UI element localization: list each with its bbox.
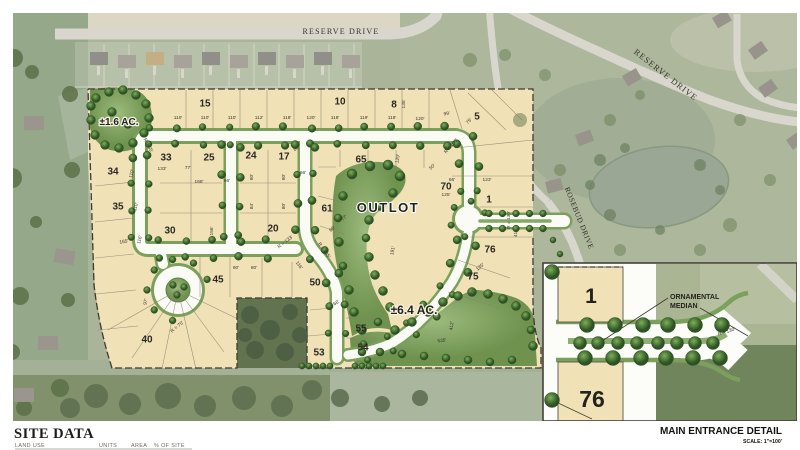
tree-cluster	[155, 383, 181, 409]
lot-number: 61	[321, 204, 333, 215]
tree-icon	[486, 225, 493, 232]
tree-icon	[199, 124, 206, 131]
tree-icon	[441, 122, 449, 130]
tree-cluster	[554, 164, 566, 176]
tree-icon	[87, 116, 96, 125]
tree-icon	[119, 86, 128, 95]
tree-icon	[384, 333, 390, 339]
tree-icon	[170, 282, 177, 289]
tree-cluster	[513, 113, 527, 127]
tree-icon	[320, 363, 326, 369]
tree-cluster	[463, 53, 477, 67]
tree-icon	[235, 252, 243, 260]
tree-icon	[484, 290, 493, 299]
tree-icon	[352, 363, 358, 369]
tree-icon	[306, 256, 313, 263]
tree-icon	[508, 356, 516, 364]
tree-icon	[308, 125, 316, 133]
tree-icon	[652, 337, 665, 350]
tree-icon	[291, 226, 299, 234]
street-name-reserve-top: RESERVE DRIVE	[303, 27, 380, 36]
detail-title: MAIN ENTRANCE DETAIL	[660, 426, 782, 437]
tree-cluster	[374, 396, 390, 412]
tree-cluster	[723, 218, 737, 232]
tree-icon	[345, 286, 354, 295]
tree-icon	[365, 253, 374, 262]
tree-icon	[362, 142, 369, 149]
tree-icon	[512, 302, 521, 311]
tree-cluster	[302, 380, 322, 400]
dimension-label: 123'	[483, 177, 492, 183]
driveway	[265, 66, 268, 75]
tree-icon	[219, 202, 226, 209]
tree-icon	[468, 198, 474, 204]
tree-icon	[540, 210, 547, 217]
tree-icon	[92, 94, 101, 103]
tree-cluster	[51, 379, 69, 397]
tree-icon	[341, 301, 348, 308]
inset-lot-76-number: 76	[579, 386, 605, 412]
lot-number: 53	[313, 348, 325, 359]
dimension-label: 133'	[158, 166, 167, 172]
tree-icon	[334, 140, 341, 147]
lot-number: 34	[107, 167, 119, 178]
tree-icon	[499, 225, 506, 232]
tree-cluster	[594, 154, 606, 166]
tree-icon	[200, 142, 207, 149]
tree-icon	[455, 160, 463, 168]
tree-icon	[281, 142, 289, 150]
tree-icon	[437, 283, 444, 290]
tree-icon	[390, 348, 396, 354]
tree-icon	[326, 303, 333, 310]
tree-icon	[612, 337, 625, 350]
lot-number: 24	[245, 151, 257, 162]
tree-icon	[442, 354, 450, 362]
tree-icon	[365, 216, 374, 225]
tree-cluster	[604, 114, 616, 126]
tree-icon	[454, 292, 463, 301]
lot-number: 17	[278, 152, 290, 163]
tree-cluster	[331, 389, 349, 407]
tree-icon	[252, 123, 260, 131]
tree-icon	[486, 358, 494, 366]
tree-icon	[335, 238, 344, 247]
tree-cluster	[585, 180, 595, 190]
tree-icon	[713, 351, 728, 366]
tree-icon	[254, 142, 262, 150]
tree-icon	[220, 233, 227, 240]
tree-icon	[383, 160, 393, 170]
tree-icon	[173, 125, 180, 132]
tree-icon	[313, 363, 319, 369]
tree-icon	[146, 181, 153, 188]
tree-icon	[169, 256, 176, 263]
tree-icon	[145, 207, 152, 214]
dimension-label: 135'	[401, 99, 407, 108]
tree-cluster	[60, 398, 80, 418]
lot-number: 33	[160, 153, 172, 164]
tree-icon	[339, 192, 348, 201]
lot-number: 54	[357, 343, 369, 354]
dimension-label: 118'	[331, 115, 340, 121]
tree-icon	[513, 210, 520, 217]
tree-icon	[389, 189, 398, 198]
dimension-label: 165'	[119, 238, 129, 245]
tree-icon	[204, 276, 211, 283]
tree-icon	[145, 114, 154, 123]
tree-cluster	[715, 185, 725, 195]
tree-icon	[350, 308, 359, 317]
tree-cluster	[614, 244, 626, 256]
dimension-label: 118'	[388, 115, 397, 121]
driveway	[321, 66, 324, 75]
tree-icon	[398, 350, 406, 358]
tree-cluster	[292, 327, 308, 343]
tree-icon	[306, 363, 312, 369]
lot-number: 15	[199, 99, 211, 110]
tree-cluster	[84, 384, 108, 408]
tree-icon	[128, 234, 135, 241]
dimension-label: 77'	[185, 165, 191, 171]
driveway	[97, 66, 100, 75]
lot-number: 20	[267, 224, 279, 235]
tree-icon	[408, 318, 417, 327]
house-roof	[342, 55, 360, 68]
tree-icon	[115, 144, 124, 153]
dimension-label: R = 130'	[506, 211, 512, 229]
tree-icon	[347, 169, 357, 179]
tree-icon	[420, 352, 428, 360]
tree-cluster	[64, 162, 80, 178]
tree-icon	[526, 210, 533, 217]
tree-icon	[499, 210, 506, 217]
dimension-label: 168'	[195, 179, 204, 185]
tree-icon	[389, 142, 396, 149]
ornamental-median-label-line2: MEDIAN	[670, 303, 698, 310]
tree-icon	[294, 199, 302, 207]
site-plan-map: RESERVE DRIVE RESERVE DRIVE ROSEBUD DRIV…	[0, 0, 800, 450]
house-roof	[230, 55, 248, 68]
tree-icon	[522, 312, 531, 321]
tree-icon	[169, 317, 176, 324]
tree-icon	[395, 171, 405, 181]
tree-icon	[380, 363, 386, 369]
tree-cluster	[119, 393, 141, 415]
lot-number: 76	[484, 245, 496, 256]
tree-icon	[448, 222, 454, 228]
dimension-label: 66'	[224, 178, 230, 184]
tree-icon	[364, 357, 371, 364]
tree-icon	[156, 255, 163, 262]
main-entrance-detail-inset: 1 76 ORNAMENTAL MEDIAN R = 130'	[543, 263, 797, 421]
dimension-label: 80'	[251, 265, 257, 271]
tree-icon	[218, 141, 226, 149]
tree-icon	[474, 188, 481, 195]
lot-number: 25	[203, 153, 215, 164]
tree-icon	[236, 173, 244, 181]
lot-number: 50	[309, 278, 321, 289]
house-roof	[286, 55, 304, 68]
lot-number: 65	[355, 155, 367, 166]
lot-number: 35	[112, 202, 124, 213]
tree-icon	[359, 363, 365, 369]
dimension-label: 156'	[209, 226, 215, 235]
driveway	[349, 69, 352, 78]
tree-cluster	[655, 225, 665, 235]
tree-icon	[631, 337, 644, 350]
tree-icon	[182, 253, 189, 260]
tree-icon	[155, 236, 162, 243]
tree-icon	[671, 337, 684, 350]
house-roof	[14, 388, 34, 402]
dimension-label: 66'	[300, 170, 306, 176]
tree-icon	[557, 251, 563, 257]
tree-icon	[91, 131, 100, 140]
tree-icon	[529, 342, 538, 351]
acreage-large-label: ±6.4 AC.	[391, 303, 438, 317]
tree-icon	[264, 255, 272, 263]
tree-icon	[208, 236, 215, 243]
tree-cluster	[694, 244, 706, 256]
tree-icon	[526, 225, 533, 232]
tree-icon	[446, 259, 454, 267]
site-data-col-area: AREA	[131, 443, 147, 449]
tree-icon	[129, 139, 138, 148]
house-roof	[174, 55, 192, 68]
tree-icon	[462, 234, 468, 240]
tree-icon	[142, 100, 151, 109]
lot-number: 40	[141, 335, 153, 346]
tree-icon	[327, 363, 333, 369]
tree-icon	[183, 238, 190, 245]
tree-icon	[308, 196, 316, 204]
tree-cluster	[16, 400, 32, 416]
tree-icon	[235, 232, 242, 239]
tree-icon	[379, 287, 388, 296]
dimension-label: 84'	[249, 203, 255, 209]
tree-icon	[387, 123, 394, 130]
tree-icon	[414, 122, 422, 130]
tree-icon	[299, 363, 305, 369]
tree-icon	[373, 363, 379, 369]
acreage-small-label: ±1.6 AC.	[99, 117, 138, 128]
tree-cluster	[604, 209, 616, 221]
tree-icon	[416, 142, 424, 150]
tree-icon	[342, 330, 348, 336]
tree-icon	[574, 337, 587, 350]
tree-icon	[322, 279, 330, 287]
tree-icon	[132, 91, 141, 100]
house-roof	[258, 52, 276, 65]
lot-number: 1	[486, 195, 492, 206]
tree-icon	[181, 284, 188, 291]
dimension-label: 118'	[283, 115, 292, 121]
tree-icon	[391, 326, 400, 335]
tree-icon	[606, 351, 621, 366]
driveway	[125, 69, 128, 78]
tree-icon	[661, 318, 676, 333]
tree-icon	[608, 318, 623, 333]
dimension-label: 110'	[228, 115, 237, 121]
house-roof	[90, 52, 108, 65]
house-roof	[146, 52, 164, 65]
tree-icon	[686, 351, 701, 366]
lot-number: 55	[355, 324, 367, 335]
tree-icon	[325, 330, 331, 336]
house-roof	[314, 52, 332, 65]
tree-icon	[457, 188, 464, 195]
tree-icon	[335, 125, 342, 132]
tree-cluster	[238, 328, 252, 342]
ornamental-median-label-line1: ORNAMENTAL	[670, 294, 720, 301]
dimension-label: 80'	[281, 203, 287, 209]
tree-icon	[636, 318, 651, 333]
tree-icon	[171, 140, 178, 147]
tree-icon	[540, 225, 547, 232]
house-roof	[202, 52, 220, 65]
dimension-label: 110'	[201, 115, 210, 121]
lot-number: 30	[164, 226, 176, 237]
tree-icon	[550, 237, 556, 243]
tree-icon	[362, 234, 370, 242]
tree-cluster	[62, 86, 78, 102]
tree-icon	[688, 318, 703, 333]
tree-icon	[145, 235, 152, 242]
dimension-label: 41'	[513, 231, 519, 237]
tree-icon	[226, 124, 233, 131]
driveway	[181, 69, 184, 78]
lot-number: 8	[391, 100, 397, 111]
tree-icon	[210, 255, 217, 262]
inset-lot-1-number: 1	[585, 285, 597, 308]
tree-cluster	[412, 390, 428, 406]
tree-icon	[87, 102, 96, 111]
tree-icon	[236, 143, 244, 151]
dimension-label: 120'	[307, 115, 316, 121]
tree-icon	[339, 262, 347, 270]
tree-icon	[413, 331, 420, 338]
tree-icon	[151, 307, 158, 314]
dimension-label: 120'	[416, 116, 425, 122]
tree-icon	[545, 393, 560, 408]
driveway	[209, 66, 212, 75]
tree-cluster	[734, 114, 746, 126]
site-data-title: SITE DATA	[14, 426, 94, 442]
tree-icon	[311, 226, 319, 234]
tree-icon	[580, 318, 595, 333]
tree-icon	[174, 292, 181, 299]
driveway	[293, 69, 296, 78]
dimension-label: 97'	[143, 298, 150, 305]
dimension-label: 412'	[449, 321, 456, 330]
tree-icon	[634, 351, 649, 366]
site-data-col-units: UNITS	[99, 443, 117, 449]
tree-icon	[140, 129, 149, 138]
tree-icon	[108, 108, 117, 117]
tree-icon	[236, 203, 243, 210]
tree-icon	[374, 318, 382, 326]
tree-icon	[128, 180, 135, 187]
dimension-label: 80'	[281, 174, 287, 180]
tree-cluster	[241, 306, 259, 324]
tree-icon	[451, 204, 457, 210]
tree-cluster	[232, 386, 256, 410]
tree-icon	[578, 351, 593, 366]
tree-cluster	[260, 320, 280, 340]
tree-icon	[361, 123, 368, 130]
tree-icon	[499, 295, 508, 304]
tree-icon	[545, 265, 560, 280]
tree-icon	[262, 236, 270, 244]
tree-icon	[279, 123, 287, 131]
tree-cluster	[282, 304, 298, 320]
house-roof	[38, 336, 58, 350]
dimension-label: 66'	[449, 177, 455, 183]
tree-icon	[453, 236, 461, 244]
tree-icon	[707, 337, 720, 350]
tree-icon	[689, 337, 702, 350]
driveway	[237, 69, 240, 78]
tree-cluster	[635, 90, 645, 100]
detail-scale: SCALE: 1"=100'	[743, 439, 782, 445]
tree-icon	[472, 242, 480, 250]
tree-cluster	[30, 216, 42, 228]
tree-cluster	[271, 395, 293, 417]
dimension-label: 80'	[249, 174, 255, 180]
dimension-label: 99'	[443, 111, 450, 118]
tree-icon	[366, 363, 372, 369]
tree-cluster	[694, 159, 706, 171]
site-data-col-land-use: LAND USE	[15, 443, 45, 449]
tree-cluster	[620, 143, 630, 153]
tree-icon	[218, 171, 226, 179]
tree-icon	[227, 141, 234, 148]
house-roof	[24, 116, 44, 130]
tree-icon	[190, 260, 197, 267]
tree-icon	[469, 132, 477, 140]
dimension-label: 110'	[174, 115, 183, 121]
tree-icon	[659, 351, 674, 366]
lot-number: 70	[440, 182, 452, 193]
dimension-label: 535'	[437, 338, 446, 345]
house-roof	[118, 55, 136, 68]
tree-cluster	[499, 49, 511, 61]
tree-cluster	[194, 395, 216, 417]
tree-icon	[376, 348, 384, 356]
dimension-label: 80'	[233, 265, 239, 271]
driveway	[153, 66, 156, 75]
tree-icon	[592, 337, 605, 350]
lot-number: 75	[467, 272, 479, 283]
tree-icon	[371, 271, 380, 280]
tree-cluster	[25, 65, 39, 79]
tree-cluster	[61, 293, 75, 307]
tree-cluster	[276, 343, 294, 361]
tree-icon	[475, 163, 483, 171]
tree-cluster	[246, 341, 264, 359]
tree-icon	[105, 88, 114, 97]
dimension-label: 112'	[255, 115, 264, 121]
tree-icon	[151, 267, 158, 274]
plan-canvas: RESERVE DRIVE RESERVE DRIVE ROSEBUD DRIV…	[0, 0, 800, 450]
dimension-label: 119'	[360, 115, 369, 121]
tree-icon	[335, 269, 343, 277]
outlot-label: OUTLOT	[357, 200, 419, 215]
tree-cluster	[539, 69, 551, 81]
tree-icon	[527, 326, 535, 334]
lot-number: 5	[474, 112, 480, 123]
